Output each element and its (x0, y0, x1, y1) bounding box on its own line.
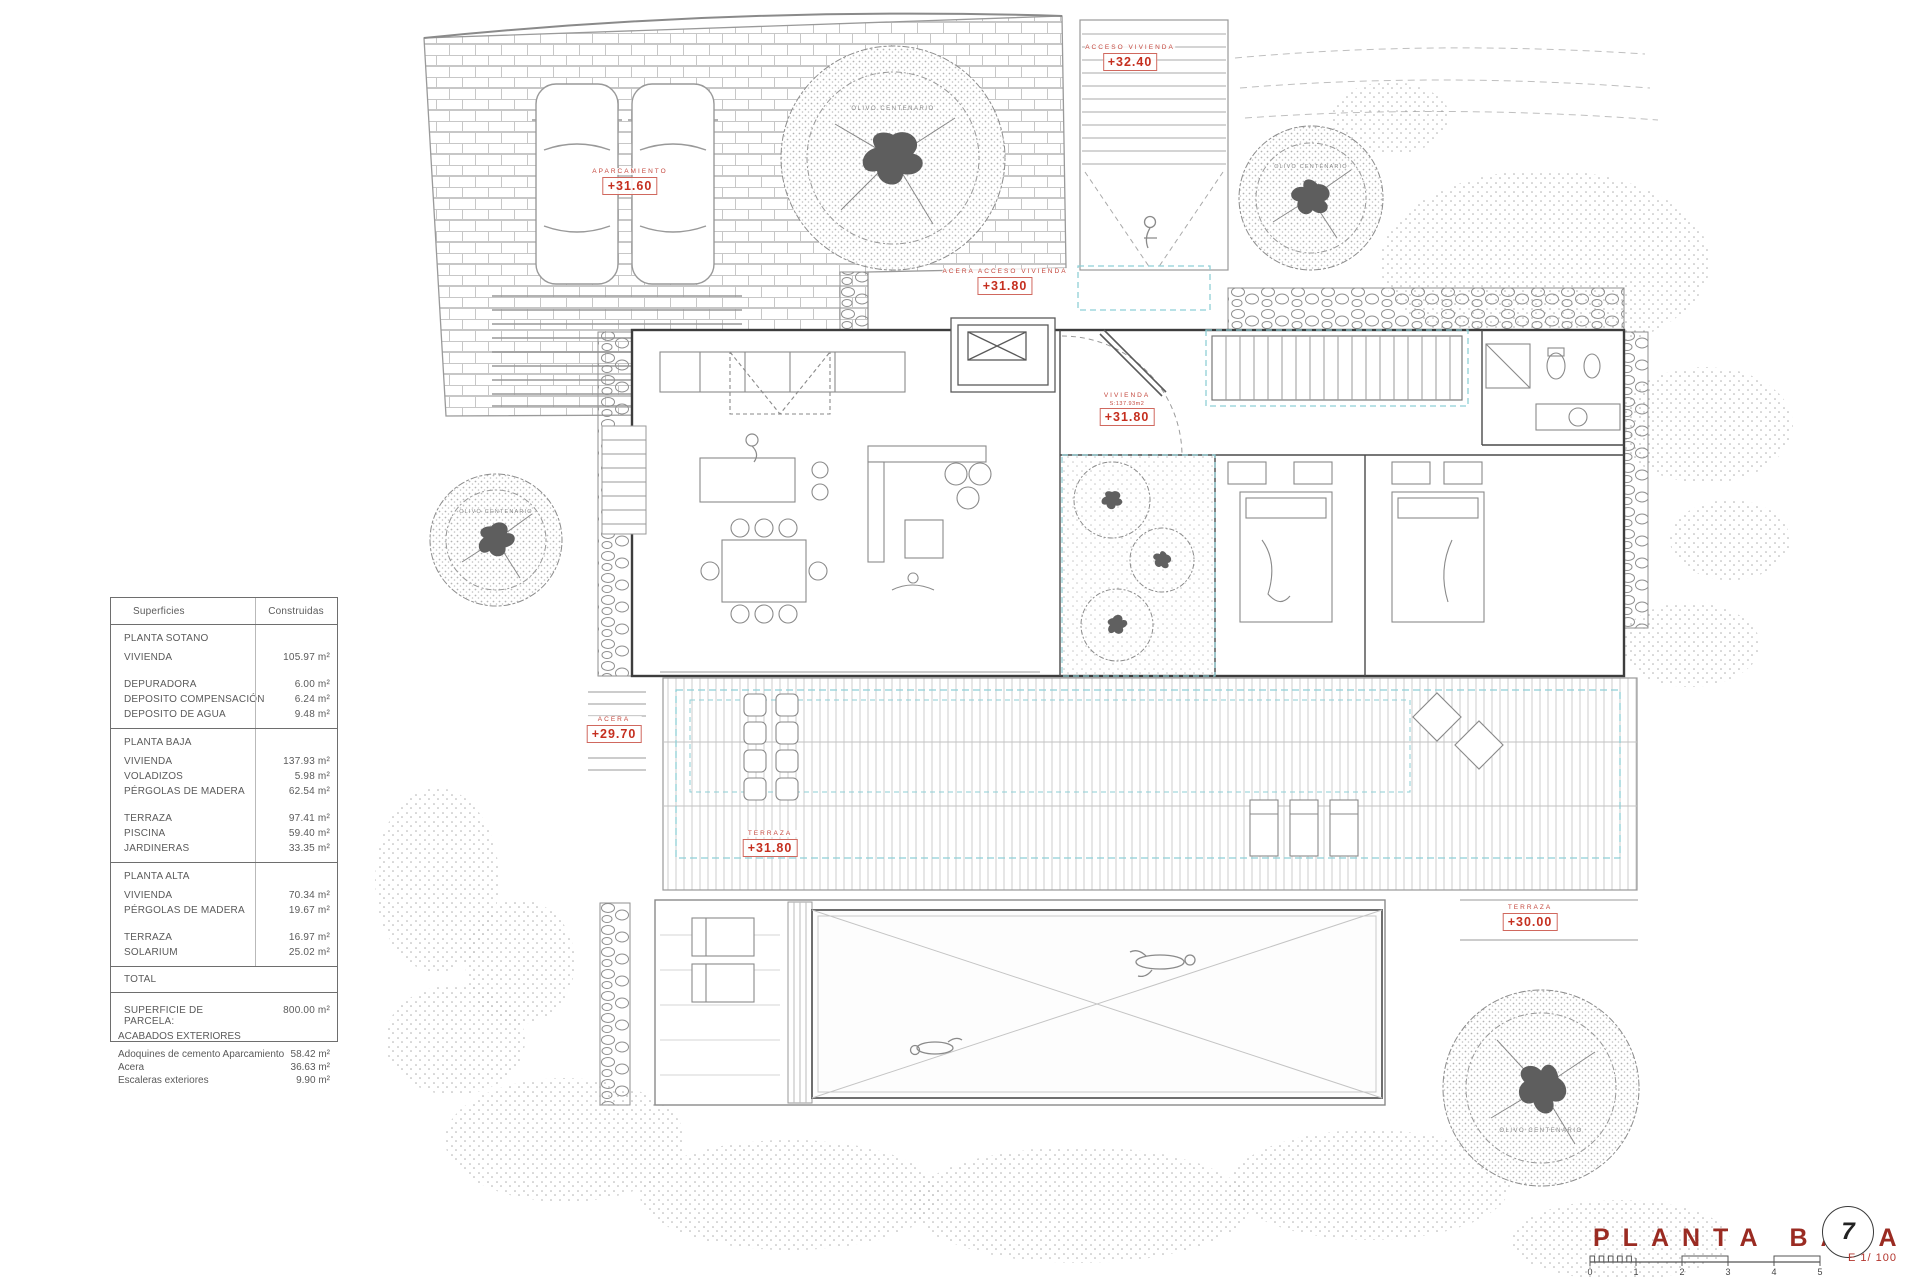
floor-plan-sheet: OLIVO CENTENARIO OLIVO CENTENARIO OLIVO … (0, 0, 1920, 1280)
row-spacer (111, 665, 337, 677)
parcel-label: SUPERFICIE DE PARCELA: (111, 1005, 255, 1027)
scale-tick: 1 (1633, 1267, 1638, 1277)
label-caption: ACCESO VIVIENDA (1085, 44, 1175, 51)
scale-tick: 5 (1817, 1267, 1822, 1277)
row-value: 70.34 m² (255, 888, 337, 903)
exterior-finishes: ACABADOS EXTERIORES Adoquines de cemento… (118, 1031, 330, 1087)
row-value: 33.35 m² (255, 841, 337, 856)
elevation-value: +31.80 (743, 839, 798, 857)
row-value: 97.41 m² (255, 811, 337, 826)
elevation-value: +31.80 (978, 277, 1033, 295)
row-label: VIVIENDA (111, 888, 255, 903)
row-spacer (111, 799, 337, 811)
label-area-note: S:137.93m2 (1100, 401, 1155, 407)
pool (812, 910, 1382, 1098)
finish-label: Adoquines de cemento Aparcamiento (118, 1048, 284, 1061)
finish-row: Escaleras exteriores 9.90 m² (118, 1074, 330, 1087)
label-caption: APARCAMIENTO (592, 168, 667, 175)
label-caption: VIVIENDA (1100, 392, 1155, 399)
total-row: TOTAL (111, 967, 337, 993)
table-section-planta-baja: PLANTA BAJA VIVIENDA 137.93 m² VOLADIZOS… (111, 729, 337, 863)
table-section-planta-alta: PLANTA ALTA VIVIENDA 70.34 m² PÉRGOLAS D… (111, 863, 337, 967)
row-label: VOLADIZOS (111, 769, 255, 784)
parcel-value: 800.00 m² (255, 1005, 337, 1027)
row-label: JARDINERAS (111, 841, 255, 856)
elevation-label-aparcamiento: APARCAMIENTO +31.60 (592, 168, 667, 195)
row-value: 62.54 m² (255, 784, 337, 799)
scale-label: E 1/ 100 (1848, 1252, 1897, 1264)
row-label: PÉRGOLAS DE MADERA (111, 784, 255, 799)
pool-terrace (655, 900, 1385, 1105)
finish-label: Acera (118, 1061, 283, 1074)
table-row: DEPOSITO COMPENSACIÓN 6.24 m² (111, 692, 337, 707)
table-row: DEPOSITO DE AGUA 9.48 m² (111, 707, 337, 722)
exterior-finishes-title: ACABADOS EXTERIORES (118, 1031, 330, 1042)
table-row: JARDINERAS 33.35 m² (111, 841, 337, 856)
label-caption: TERRAZA (743, 830, 798, 837)
label-caption: ACERA (587, 716, 642, 723)
interior-stairs (1206, 330, 1468, 406)
scale-tick: 3 (1725, 1267, 1730, 1277)
row-value: 19.67 m² (255, 903, 337, 918)
table-row: PISCINA 59.40 m² (111, 826, 337, 841)
table-header: Superficies Construidas (111, 598, 337, 625)
sheet-number: 7 (1841, 1218, 1854, 1246)
olive-tree: OLIVO CENTENARIO (1443, 990, 1639, 1186)
finish-value: 36.63 m² (283, 1061, 330, 1074)
tree-label: OLIVO CENTENARIO (851, 106, 934, 112)
elevation-value: +29.70 (587, 725, 642, 743)
table-section-planta-sotano: PLANTA SOTANO VIVIENDA 105.97 m² DEPURAD… (111, 625, 337, 729)
finish-label: Escaleras exteriores (118, 1074, 283, 1087)
row-label: DEPURADORA (111, 677, 255, 692)
olive-tree: OLIVO CENTENARIO (1239, 126, 1383, 270)
label-caption: ACERA ACCESO VIVIENDA (942, 268, 1067, 275)
elevation-value: +31.80 (1100, 408, 1155, 426)
table-row: TERRAZA 16.97 m² (111, 930, 337, 945)
scale-tick: 4 (1771, 1267, 1776, 1277)
finish-value: 9.90 m² (283, 1074, 330, 1087)
label-caption: TERRAZA (1503, 904, 1558, 911)
finish-value: 58.42 m² (284, 1048, 330, 1061)
elevation-label-acera: ACERA +29.70 (587, 716, 642, 743)
row-label: TERRAZA (111, 930, 255, 945)
elevation-label-vivienda: VIVIENDA S:137.93m2 +31.80 (1100, 392, 1155, 426)
surfaces-table: Superficies Construidas PLANTA SOTANO VI… (110, 597, 338, 1042)
finish-row: Acera 36.63 m² (118, 1061, 330, 1074)
finish-row: Adoquines de cemento Aparcamiento 58.42 … (118, 1048, 330, 1061)
tree-label: OLIVO CENTENARIO (459, 509, 533, 515)
row-label: DEPOSITO DE AGUA (111, 707, 255, 722)
elevation-label-acceso-vivienda: ACCESO VIVIENDA +32.40 (1085, 44, 1175, 71)
table-row: TERRAZA 97.41 m² (111, 811, 337, 826)
row-value: 59.40 m² (255, 826, 337, 841)
elevator (951, 318, 1055, 392)
section-title: PLANTA ALTA (111, 869, 337, 884)
table-row: PÉRGOLAS DE MADERA 62.54 m² (111, 784, 337, 799)
row-value: 16.97 m² (255, 930, 337, 945)
elevation-value: +32.40 (1103, 53, 1158, 71)
table-row: VIVIENDA 137.93 m² (111, 754, 337, 769)
row-label: VIVIENDA (111, 754, 255, 769)
elevation-label-terraza: TERRAZA +31.80 (743, 830, 798, 857)
row-label: PÉRGOLAS DE MADERA (111, 903, 255, 918)
table-row: DEPURADORA 6.00 m² (111, 677, 337, 692)
row-value: 105.97 m² (255, 650, 337, 665)
row-value: 25.02 m² (255, 945, 337, 960)
elevation-value: +30.00 (1503, 913, 1558, 931)
row-label: DEPOSITO COMPENSACIÓN (111, 692, 265, 707)
elevation-label-terraza-este: TERRAZA +30.00 (1503, 904, 1558, 931)
wood-deck (663, 678, 1637, 890)
house (632, 318, 1624, 676)
header-construidas: Construidas (255, 606, 337, 617)
table-row: VOLADIZOS 5.98 m² (111, 769, 337, 784)
table-row: VIVIENDA 105.97 m² (111, 650, 337, 665)
row-value: 5.98 m² (255, 769, 337, 784)
table-row: PÉRGOLAS DE MADERA 19.67 m² (111, 903, 337, 918)
section-title: PLANTA SOTANO (111, 631, 337, 646)
header-superficies: Superficies (111, 606, 255, 617)
tree-label: OLIVO CENTENARIO (1499, 1128, 1582, 1134)
row-spacer (111, 918, 337, 930)
section-title: PLANTA BAJA (111, 735, 337, 750)
scale-tick: 0 (1587, 1267, 1592, 1277)
row-value: 137.93 m² (255, 754, 337, 769)
row-value: 9.48 m² (255, 707, 337, 722)
table-row: VIVIENDA 70.34 m² (111, 888, 337, 903)
table-row: SOLARIUM 25.02 m² (111, 945, 337, 960)
row-value: 6.24 m² (265, 692, 337, 707)
interior-patio (1062, 455, 1215, 676)
tree-label: OLIVO CENTENARIO (1274, 164, 1348, 170)
scale-tick: 2 (1679, 1267, 1684, 1277)
row-label: SOLARIUM (111, 945, 255, 960)
elevation-value: +31.60 (603, 177, 658, 195)
olive-tree: OLIVO CENTENARIO (781, 46, 1005, 270)
row-label: TERRAZA (111, 811, 255, 826)
row-value: 6.00 m² (255, 677, 337, 692)
row-label: PISCINA (111, 826, 255, 841)
elevation-label-acera-acceso: ACERA ACCESO VIVIENDA +31.80 (942, 268, 1067, 295)
service-ladder (602, 426, 646, 534)
row-label: VIVIENDA (111, 650, 255, 665)
olive-tree: OLIVO CENTENARIO (430, 474, 562, 606)
graphic-scale-bar: 0 1 2 3 4 5 (1586, 1248, 1846, 1278)
